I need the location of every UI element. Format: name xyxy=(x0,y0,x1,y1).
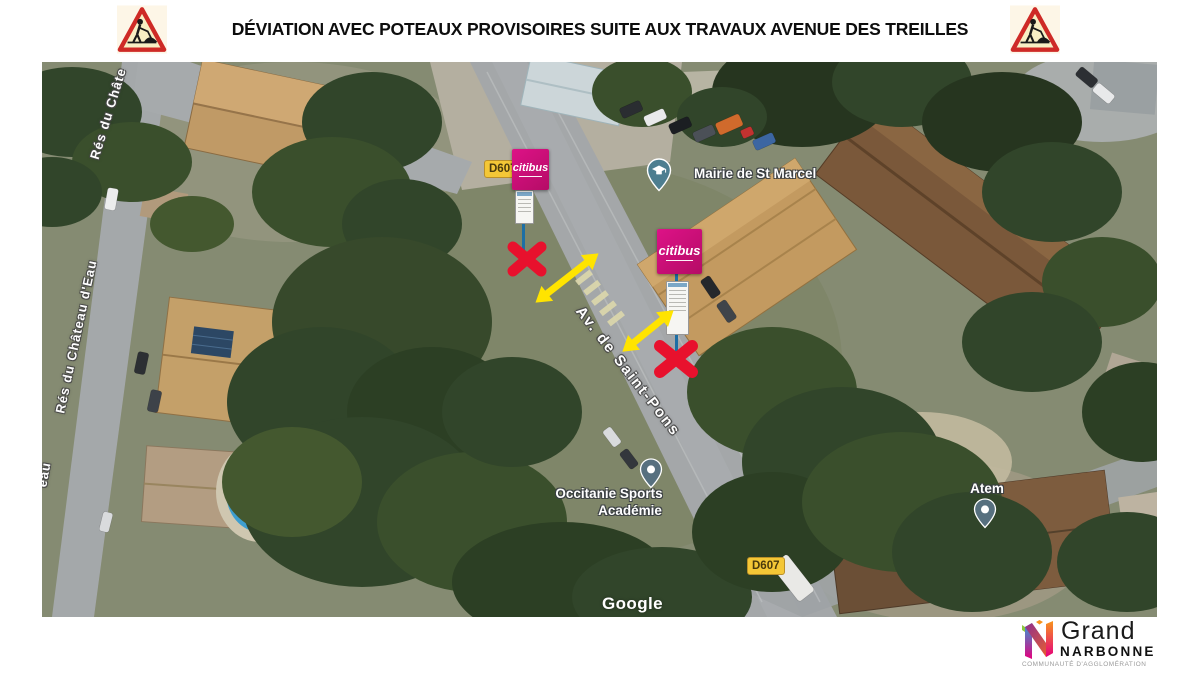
poi-label-mairie: Mairie de St Marcel xyxy=(694,166,816,181)
poi-label-occitanie-line2: Académie xyxy=(550,503,710,518)
poi-label-occitanie-line1: Occitanie Sports xyxy=(529,486,689,501)
bus-stop-timetable-1 xyxy=(515,190,534,224)
poi-label-atem: Atem xyxy=(947,481,1027,496)
logo-text-narbonne: NARBONNE xyxy=(1060,644,1156,659)
mairie-pin-icon xyxy=(646,158,672,192)
roadwork-sign-icon xyxy=(1010,3,1060,56)
citibus-stop-sign-2: citibus xyxy=(657,229,702,274)
citibus-brand-label: citibus xyxy=(659,243,701,258)
grand-narbonne-n-icon xyxy=(1022,620,1056,660)
citibus-stop-sign-1: citibus xyxy=(512,149,549,190)
route-badge-d607-bottom: D607 xyxy=(747,557,785,575)
logo-tagline: COMMUNAUTÉ D'AGGLOMÉRATION xyxy=(1022,661,1162,668)
citibus-brand-label: citibus xyxy=(513,162,548,174)
logo-text-grand: Grand xyxy=(1061,617,1135,646)
page-title: DÉVIATION AVEC POTEAUX PROVISOIRES SUITE… xyxy=(175,19,1025,40)
google-watermark: Google xyxy=(602,594,663,614)
occitanie-sports-pin-icon xyxy=(639,458,663,489)
roadwork-sign-icon xyxy=(117,3,167,56)
grand-narbonne-logo: Grand NARBONNE COMMUNAUTÉ D'AGGLOMÉRATIO… xyxy=(1022,617,1162,672)
atem-pin-icon xyxy=(973,498,997,529)
detour-arrow-icon-2 xyxy=(618,294,678,368)
detour-notice-page: DÉVIATION AVEC POTEAUX PROVISOIRES SUITE… xyxy=(0,0,1200,675)
detour-arrow-icon-1 xyxy=(532,236,602,320)
satellite-map: Rés du Châte Rés du Château d'Eau eau Av… xyxy=(42,62,1157,617)
